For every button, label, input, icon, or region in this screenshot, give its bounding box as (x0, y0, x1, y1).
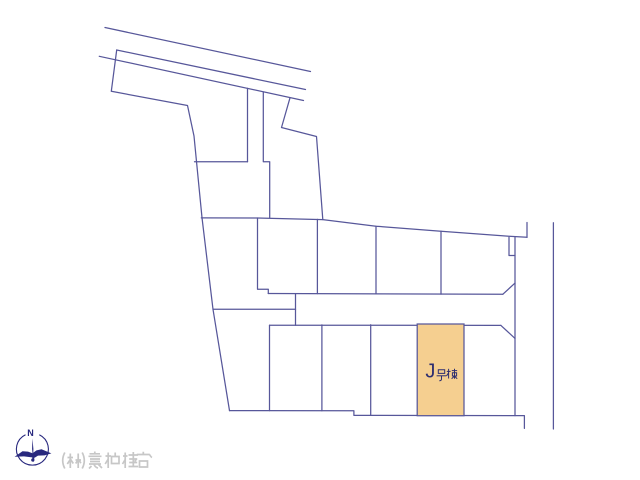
svg-text:J: J (425, 361, 435, 383)
svg-text:N: N (27, 428, 34, 438)
